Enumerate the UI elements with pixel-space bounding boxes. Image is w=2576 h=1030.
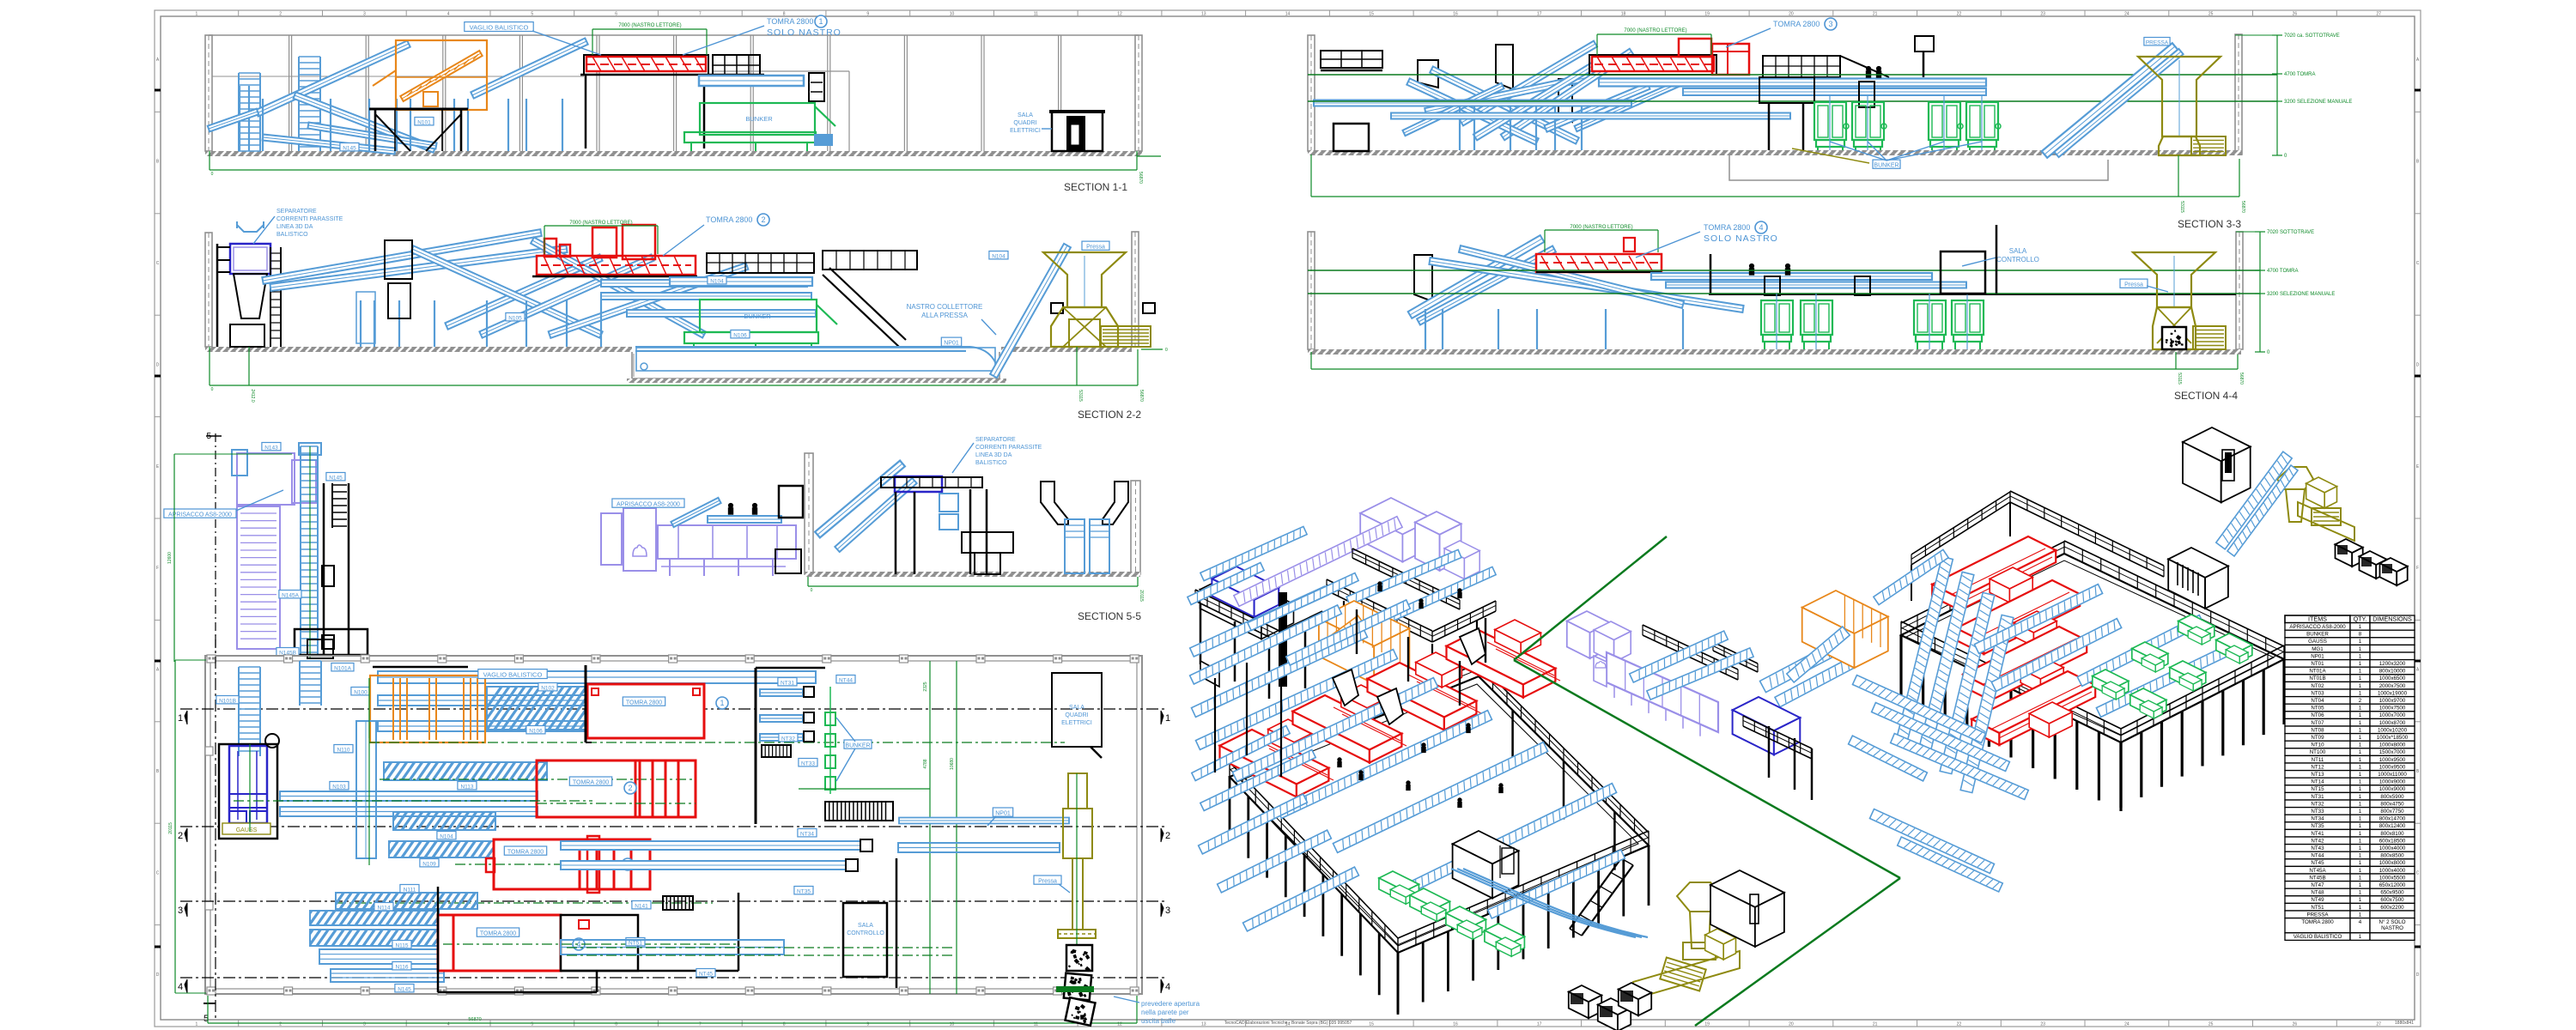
svg-text:1: 1 <box>2359 816 2362 822</box>
svg-text:7020 SOTTOTRAVE: 7020 SOTTOTRAVE <box>2267 230 2314 235</box>
svg-text:1: 1 <box>2359 875 2362 881</box>
svg-text:1: 1 <box>2359 831 2362 837</box>
svg-text:NT31: NT31 <box>781 680 794 686</box>
svg-text:SALA: SALA <box>1069 705 1084 711</box>
svg-text:25: 25 <box>2208 12 2214 17</box>
svg-text:NT100: NT100 <box>2310 749 2326 755</box>
svg-text:3: 3 <box>1165 906 1170 916</box>
svg-text:TOMRA 2800: TOMRA 2800 <box>767 17 813 26</box>
svg-text:7000 (NASTRO LETTORE): 7000 (NASTRO LETTORE) <box>1570 225 1632 230</box>
svg-text:1: 1 <box>2359 838 2362 844</box>
svg-text:N113: N113 <box>460 784 473 790</box>
svg-text:NT04: NT04 <box>2311 698 2324 704</box>
svg-text:1: 1 <box>2359 890 2362 896</box>
svg-text:6: 6 <box>615 12 617 17</box>
svg-text:22: 22 <box>1957 1022 1962 1027</box>
svg-text:21: 21 <box>1873 1022 1878 1027</box>
svg-text:CONTROLLO: CONTROLLO <box>1996 256 2039 264</box>
svg-text:1000x7000: 1000x7000 <box>2379 712 2406 718</box>
svg-text:NP01: NP01 <box>944 340 959 346</box>
svg-text:1: 1 <box>2359 624 2362 630</box>
svg-text:1: 1 <box>2359 639 2362 645</box>
svg-text:3: 3 <box>1828 20 1832 28</box>
svg-text:1: 1 <box>196 12 198 17</box>
svg-text:NT35: NT35 <box>797 888 811 894</box>
svg-text:TOMRA 2800: TOMRA 2800 <box>1773 20 1820 28</box>
svg-text:C: C <box>156 870 160 875</box>
svg-text:NT45: NT45 <box>699 971 713 977</box>
svg-text:uscita balle: uscita balle <box>1141 1017 1176 1025</box>
svg-text:BUNKER: BUNKER <box>845 743 870 749</box>
svg-text:TOMRA 2800: TOMRA 2800 <box>2301 919 2334 925</box>
svg-text:SECTION 5-5: SECTION 5-5 <box>1078 610 1141 622</box>
svg-text:1: 1 <box>2359 772 2362 778</box>
svg-text:1: 1 <box>2359 690 2362 696</box>
svg-text:1: 1 <box>2359 727 2362 733</box>
svg-text:1: 1 <box>2359 661 2362 667</box>
svg-text:23: 23 <box>2040 1022 2045 1027</box>
svg-text:NT33: NT33 <box>801 760 815 766</box>
svg-text:NT33: NT33 <box>2311 809 2324 815</box>
svg-text:14: 14 <box>1285 12 1291 17</box>
svg-text:LINEA 3D DA: LINEA 3D DA <box>276 224 313 230</box>
svg-text:LINEA 3D DA: LINEA 3D DA <box>975 452 1012 458</box>
svg-text:4: 4 <box>1165 982 1170 992</box>
svg-text:NT48: NT48 <box>2311 890 2324 896</box>
svg-text:17: 17 <box>1537 12 1542 17</box>
svg-text:BALISTICO: BALISTICO <box>276 232 308 238</box>
svg-text:1000x9000: 1000x9000 <box>2379 786 2406 792</box>
svg-text:1: 1 <box>720 699 724 707</box>
svg-text:Pressa: Pressa <box>1038 879 1057 885</box>
svg-text:1: 1 <box>2359 853 2362 859</box>
svg-text:800x12400: 800x12400 <box>2379 823 2406 829</box>
svg-text:600x7500: 600x7500 <box>2380 897 2404 903</box>
svg-text:22: 22 <box>1957 12 1962 17</box>
svg-text:56870: 56870 <box>1138 172 1143 184</box>
svg-text:2325: 2325 <box>923 682 928 691</box>
svg-text:NT14: NT14 <box>2311 779 2324 785</box>
svg-text:27: 27 <box>2376 1022 2381 1027</box>
svg-text:SALA: SALA <box>858 923 873 929</box>
svg-text:7000 (NASTRO LETTORE): 7000 (NASTRO LETTORE) <box>618 23 681 28</box>
svg-text:SECTION 2-2: SECTION 2-2 <box>1078 409 1141 421</box>
svg-text:NASTRO: NASTRO <box>2381 925 2403 931</box>
svg-text:1: 1 <box>2359 742 2362 748</box>
svg-text:1: 1 <box>2359 720 2362 726</box>
svg-text:BUNKER: BUNKER <box>1874 162 1899 168</box>
svg-text:ELETTRICI: ELETTRICI <box>1010 128 1041 134</box>
svg-text:1: 1 <box>2359 905 2362 911</box>
svg-text:N101A: N101A <box>334 665 352 671</box>
svg-text:N145A: N145A <box>282 592 300 598</box>
svg-text:N° 2 SOLO: N° 2 SOLO <box>2379 919 2405 925</box>
svg-text:NT34: NT34 <box>2311 816 2324 822</box>
svg-text:1000x9500: 1000x9500 <box>2379 757 2406 763</box>
svg-text:0: 0 <box>1165 348 1168 353</box>
svg-text:1: 1 <box>196 1022 198 1027</box>
svg-text:NT15: NT15 <box>2311 786 2324 792</box>
svg-text:SECTION 4-4: SECTION 4-4 <box>2174 390 2238 402</box>
svg-text:1000x*18500: 1000x*18500 <box>2377 735 2409 741</box>
svg-text:D: D <box>2416 362 2420 367</box>
svg-text:650x12000: 650x12000 <box>2379 882 2406 888</box>
svg-text:4: 4 <box>447 12 450 17</box>
svg-text:1000x19000: 1000x19000 <box>2378 690 2408 696</box>
svg-text:800x5900: 800x5900 <box>2380 794 2404 800</box>
svg-text:4: 4 <box>2359 919 2362 925</box>
svg-text:NT05: NT05 <box>2311 706 2324 712</box>
svg-text:1000x9700: 1000x9700 <box>2379 698 2406 704</box>
svg-text:VAGLIO BALISTICO: VAGLIO BALISTICO <box>470 24 529 32</box>
svg-text:N109: N109 <box>422 861 436 867</box>
svg-text:16: 16 <box>1453 1022 1458 1027</box>
svg-text:56870: 56870 <box>2240 201 2245 213</box>
svg-text:1: 1 <box>2359 779 2362 785</box>
svg-text:N104: N104 <box>992 253 1005 259</box>
svg-text:NT13: NT13 <box>2311 772 2324 778</box>
svg-text:2000x7500: 2000x7500 <box>2379 683 2406 689</box>
svg-text:20: 20 <box>1789 1022 1794 1027</box>
svg-text:1: 1 <box>2359 912 2362 918</box>
svg-text:N114: N114 <box>377 905 390 911</box>
svg-text:1: 1 <box>2359 897 2362 903</box>
svg-text:800x8100: 800x8100 <box>2380 831 2404 837</box>
svg-text:CORRENTI PARASSITE: CORRENTI PARASSITE <box>276 216 343 222</box>
svg-text:NT31: NT31 <box>2311 794 2324 800</box>
svg-text:ALLA PRESSA: ALLA PRESSA <box>921 312 968 319</box>
svg-text:D: D <box>156 362 160 367</box>
svg-text:3200 SELEZIONE MANUALE: 3200 SELEZIONE MANUALE <box>2284 100 2352 105</box>
svg-text:NT47: NT47 <box>2311 882 2324 888</box>
svg-text:2: 2 <box>1165 831 1170 841</box>
svg-text:7000 (NASTRO LETTORE): 7000 (NASTRO LETTORE) <box>569 221 632 226</box>
svg-text:25: 25 <box>2208 1022 2214 1027</box>
svg-text:NT01: NT01 <box>2311 661 2324 667</box>
svg-text:56870: 56870 <box>1139 390 1144 402</box>
svg-text:D: D <box>2416 972 2420 978</box>
svg-text:1000x9000: 1000x9000 <box>2379 779 2406 785</box>
svg-text:16: 16 <box>1453 12 1458 17</box>
svg-text:NT35: NT35 <box>2311 823 2324 829</box>
svg-text:1200x3200: 1200x3200 <box>2379 661 2406 667</box>
svg-text:NT43: NT43 <box>2311 845 2324 851</box>
svg-text:800x14700: 800x14700 <box>2379 816 2406 822</box>
svg-text:N106: N106 <box>733 332 747 338</box>
svg-text:1: 1 <box>2359 706 2362 712</box>
svg-text:APRISACCO AS8-2000: APRISACCO AS8-2000 <box>2289 624 2346 630</box>
svg-text:N143: N143 <box>264 445 278 451</box>
svg-text:NT41: NT41 <box>2311 831 2324 837</box>
svg-text:1: 1 <box>2359 823 2362 829</box>
svg-text:SOLO NASTRO: SOLO NASTRO <box>1704 233 1778 244</box>
svg-text:1: 1 <box>2359 794 2362 800</box>
svg-text:1000x10200: 1000x10200 <box>2378 727 2408 733</box>
svg-text:600x18500: 600x18500 <box>2379 838 2406 844</box>
svg-text:NT44: NT44 <box>2311 853 2324 859</box>
svg-text:24: 24 <box>2124 1022 2129 1027</box>
svg-text:SOLO NASTRO: SOLO NASTRO <box>767 27 841 38</box>
svg-text:56870: 56870 <box>468 1017 481 1022</box>
svg-text:2412.0: 2412.0 <box>250 389 255 403</box>
svg-text:1000x11000: 1000x11000 <box>2378 772 2407 778</box>
svg-text:1: 1 <box>2359 882 2362 888</box>
svg-text:1: 1 <box>2359 749 2362 755</box>
svg-text:11: 11 <box>1034 12 1038 17</box>
svg-text:2: 2 <box>761 215 765 224</box>
svg-text:F: F <box>2416 566 2419 571</box>
svg-text:3200 SELEZIONE MANUALE: 3200 SELEZIONE MANUALE <box>2267 292 2335 297</box>
svg-text:QUADRI: QUADRI <box>1013 120 1036 126</box>
svg-text:1: 1 <box>1165 713 1170 724</box>
svg-text:BUNKER: BUNKER <box>2306 632 2329 638</box>
svg-text:56870: 56870 <box>2239 373 2244 385</box>
svg-text:NP01: NP01 <box>2311 653 2324 659</box>
svg-text:19: 19 <box>1704 1022 1710 1027</box>
svg-text:Pressa: Pressa <box>2124 282 2143 288</box>
svg-text:NT49: NT49 <box>2311 897 2324 903</box>
svg-text:TOMRA 2800: TOMRA 2800 <box>1704 223 1750 232</box>
svg-text:SEPARATORE: SEPARATORE <box>276 209 317 215</box>
svg-text:NT07: NT07 <box>2311 720 2324 726</box>
svg-text:BALISTICO: BALISTICO <box>975 460 1007 466</box>
svg-text:SEPARATORE: SEPARATORE <box>975 437 1016 443</box>
svg-text:NT11: NT11 <box>2312 757 2324 763</box>
svg-text:7: 7 <box>699 12 702 17</box>
svg-text:NT01A: NT01A <box>2309 669 2326 675</box>
svg-text:5: 5 <box>531 12 533 17</box>
svg-text:NT42: NT42 <box>2311 838 2324 844</box>
svg-text:1000x9500: 1000x9500 <box>2379 764 2406 770</box>
svg-text:1000x8700: 1000x8700 <box>2379 720 2406 726</box>
svg-text:TOMRA 2800: TOMRA 2800 <box>706 215 752 224</box>
svg-text:NT08: NT08 <box>2311 727 2324 733</box>
svg-text:NT06: NT06 <box>2311 712 2324 718</box>
svg-text:PRESSA: PRESSA <box>2306 912 2329 918</box>
svg-text:TecnoCAD Elaborazioni Tecniche: TecnoCAD Elaborazioni Tecniche - Bonate … <box>1224 1021 1352 1026</box>
svg-text:53115: 53115 <box>1078 390 1083 402</box>
svg-text:8: 8 <box>783 12 786 17</box>
svg-text:C: C <box>2416 261 2420 266</box>
svg-text:N110: N110 <box>337 747 349 753</box>
svg-text:NT34: NT34 <box>800 831 814 837</box>
svg-text:2: 2 <box>279 12 282 17</box>
svg-text:N145: N145 <box>329 475 343 481</box>
svg-text:TOMRA 2800: TOMRA 2800 <box>626 700 662 706</box>
svg-text:QTY.: QTY. <box>2354 615 2367 622</box>
svg-text:1: 1 <box>2359 809 2362 815</box>
svg-text:800x10000: 800x10000 <box>2379 669 2406 675</box>
svg-text:17: 17 <box>1537 1022 1542 1027</box>
svg-text:NT02: NT02 <box>2311 683 2324 689</box>
svg-text:1000x4000: 1000x4000 <box>2379 868 2406 874</box>
svg-text:1: 1 <box>2359 764 2362 770</box>
svg-text:N145: N145 <box>398 986 411 992</box>
svg-text:1: 1 <box>2359 786 2362 792</box>
svg-text:13: 13 <box>1201 12 1206 17</box>
svg-text:27: 27 <box>2376 12 2381 17</box>
svg-text:NT03: NT03 <box>2311 690 2324 696</box>
svg-text:4: 4 <box>178 982 183 992</box>
svg-text:QUADRI: QUADRI <box>1065 712 1088 718</box>
svg-text:prevedere apertura: prevedere apertura <box>1141 1000 1200 1008</box>
svg-text:nella parete per: nella parete per <box>1141 1009 1189 1016</box>
svg-text:BUNKER: BUNKER <box>745 115 773 123</box>
svg-text:D: D <box>156 972 160 978</box>
svg-text:15: 15 <box>1369 1022 1374 1027</box>
svg-text:1: 1 <box>2359 757 2362 763</box>
svg-text:4: 4 <box>1759 223 1763 232</box>
svg-text:SALA: SALA <box>2009 247 2027 255</box>
svg-text:1: 1 <box>2359 646 2362 652</box>
svg-text:1: 1 <box>2359 801 2362 807</box>
svg-text:23: 23 <box>2040 12 2045 17</box>
svg-text:N102: N102 <box>541 685 555 691</box>
svg-text:12600: 12600 <box>167 552 173 564</box>
svg-text:1: 1 <box>2359 676 2362 682</box>
svg-text:N101B: N101B <box>219 698 236 704</box>
svg-text:26: 26 <box>2293 12 2298 17</box>
svg-text:2: 2 <box>2359 698 2362 704</box>
svg-text:2: 2 <box>628 784 632 792</box>
svg-text:TOMRA 2800: TOMRA 2800 <box>507 850 544 856</box>
svg-text:4700 TOMRA: 4700 TOMRA <box>2267 269 2298 274</box>
svg-text:8: 8 <box>2359 632 2362 638</box>
svg-text:1: 1 <box>818 17 823 26</box>
svg-text:0: 0 <box>211 387 214 392</box>
svg-text:APRISACCO AS8-2000: APRISACCO AS8-2000 <box>617 502 680 508</box>
svg-text:NT10: NT10 <box>2311 742 2324 748</box>
svg-text:1000x4000: 1000x4000 <box>2379 845 2406 851</box>
svg-text:26: 26 <box>2293 1022 2298 1027</box>
svg-text:800x7750: 800x7750 <box>2380 809 2404 815</box>
svg-text:1500x7000: 1500x7000 <box>2379 749 2406 755</box>
svg-text:1000x7500: 1000x7500 <box>2379 706 2406 712</box>
svg-text:0: 0 <box>811 588 813 593</box>
svg-text:ITEMS: ITEMS <box>2308 615 2327 622</box>
svg-text:1: 1 <box>2359 934 2362 940</box>
svg-text:800x8500: 800x8500 <box>2380 853 2404 859</box>
svg-text:1: 1 <box>2359 868 2362 874</box>
svg-text:N101: N101 <box>417 119 431 125</box>
svg-text:N115: N115 <box>395 942 408 948</box>
svg-text:NT51: NT51 <box>629 940 642 946</box>
svg-text:N104: N104 <box>440 833 453 839</box>
svg-text:1000x8000: 1000x8000 <box>2379 742 2406 748</box>
svg-text:N100: N100 <box>354 689 368 695</box>
svg-text:20115: 20115 <box>168 822 173 834</box>
svg-text:N105: N105 <box>508 315 522 321</box>
svg-text:1: 1 <box>2359 669 2362 675</box>
svg-text:NT09: NT09 <box>2311 735 2324 741</box>
svg-text:NT32: NT32 <box>781 736 795 742</box>
svg-text:N104: N104 <box>710 278 724 284</box>
svg-text:20: 20 <box>1789 12 1794 17</box>
svg-text:9: 9 <box>866 12 869 17</box>
svg-text:1: 1 <box>2359 712 2362 718</box>
svg-text:21: 21 <box>1873 12 1878 17</box>
svg-text:NT01B: NT01B <box>2309 676 2325 682</box>
svg-text:1880x841: 1880x841 <box>2395 1021 2414 1026</box>
svg-text:1: 1 <box>2359 653 2362 659</box>
svg-text:N106: N106 <box>529 728 543 734</box>
svg-text:NASTRO COLLETTORE: NASTRO COLLETTORE <box>907 303 983 311</box>
svg-text:10: 10 <box>950 12 955 17</box>
svg-text:TOMRA 2800: TOMRA 2800 <box>573 780 609 786</box>
svg-text:NT12: NT12 <box>2311 764 2324 770</box>
svg-text:3: 3 <box>178 906 183 916</box>
svg-text:VAGLIO BALISTICO: VAGLIO BALISTICO <box>483 671 543 679</box>
svg-text:1000x6500: 1000x6500 <box>2379 676 2406 682</box>
svg-text:15: 15 <box>1369 12 1374 17</box>
svg-text:BUNKER: BUNKER <box>744 312 771 320</box>
svg-text:2: 2 <box>178 831 183 841</box>
svg-text:MG1: MG1 <box>2312 646 2324 652</box>
svg-text:N116: N116 <box>395 964 408 970</box>
svg-text:0: 0 <box>211 172 214 177</box>
svg-text:1: 1 <box>178 713 183 724</box>
svg-text:1000x8000: 1000x8000 <box>2379 860 2406 866</box>
svg-text:GAUSS: GAUSS <box>2308 639 2327 645</box>
svg-text:1: 1 <box>2359 683 2362 689</box>
svg-text:N111: N111 <box>404 887 416 893</box>
svg-text:53115: 53115 <box>2179 201 2184 213</box>
svg-text:12: 12 <box>1117 12 1122 17</box>
svg-text:APRISACCO AS8-2000: APRISACCO AS8-2000 <box>168 512 232 518</box>
svg-text:NP01: NP01 <box>995 811 1011 817</box>
svg-text:18: 18 <box>1621 12 1626 17</box>
svg-text:PRESSA: PRESSA <box>2146 39 2169 45</box>
svg-text:SECTION 3-3: SECTION 3-3 <box>2178 218 2241 230</box>
svg-text:1: 1 <box>2359 735 2362 741</box>
svg-text:1000x5500: 1000x5500 <box>2379 875 2406 881</box>
svg-text:NT45B: NT45B <box>2309 875 2325 881</box>
svg-text:24: 24 <box>2124 12 2129 17</box>
svg-text:NT45A: NT45A <box>2309 868 2326 874</box>
svg-text:N141: N141 <box>635 903 648 909</box>
svg-text:4700 TOMRA: 4700 TOMRA <box>2284 72 2315 77</box>
svg-text:Pressa: Pressa <box>1086 244 1105 250</box>
svg-text:13: 13 <box>1201 1022 1206 1027</box>
svg-text:4788: 4788 <box>923 759 928 768</box>
svg-text:53115: 53115 <box>2177 373 2182 385</box>
svg-text:SALA: SALA <box>1018 112 1033 118</box>
svg-text:20115: 20115 <box>1139 590 1144 602</box>
svg-text:19: 19 <box>1704 12 1710 17</box>
svg-text:NT44: NT44 <box>839 677 853 683</box>
svg-text:3: 3 <box>363 12 366 17</box>
svg-text:800x4750: 800x4750 <box>2380 801 2404 807</box>
svg-text:CORRENTI PARASSITE: CORRENTI PARASSITE <box>975 445 1042 451</box>
svg-text:CONTROLLO: CONTROLLO <box>847 930 884 936</box>
svg-text:650x9500: 650x9500 <box>2380 890 2404 896</box>
svg-text:7000 (NASTRO LETTORE): 7000 (NASTRO LETTORE) <box>1624 28 1686 33</box>
svg-text:7020 ca. SOTTOTRAVE: 7020 ca. SOTTOTRAVE <box>2284 33 2340 39</box>
svg-text:NT32: NT32 <box>2311 801 2324 807</box>
svg-text:DIMENSIONS: DIMENSIONS <box>2372 615 2412 622</box>
svg-text:F: F <box>156 566 159 571</box>
svg-text:NT45: NT45 <box>2311 860 2324 866</box>
svg-text:SECTION 1-1: SECTION 1-1 <box>1064 181 1127 193</box>
svg-text:NT51: NT51 <box>2311 905 2324 911</box>
svg-text:VAGLIO BALISTICO: VAGLIO BALISTICO <box>2293 934 2342 940</box>
svg-text:600x2200: 600x2200 <box>2380 905 2404 911</box>
svg-text:1: 1 <box>2359 860 2362 866</box>
svg-text:TOMRA 2800: TOMRA 2800 <box>480 931 516 937</box>
svg-text:C: C <box>156 261 160 266</box>
svg-text:1: 1 <box>2359 845 2362 851</box>
svg-text:N103: N103 <box>332 784 346 790</box>
